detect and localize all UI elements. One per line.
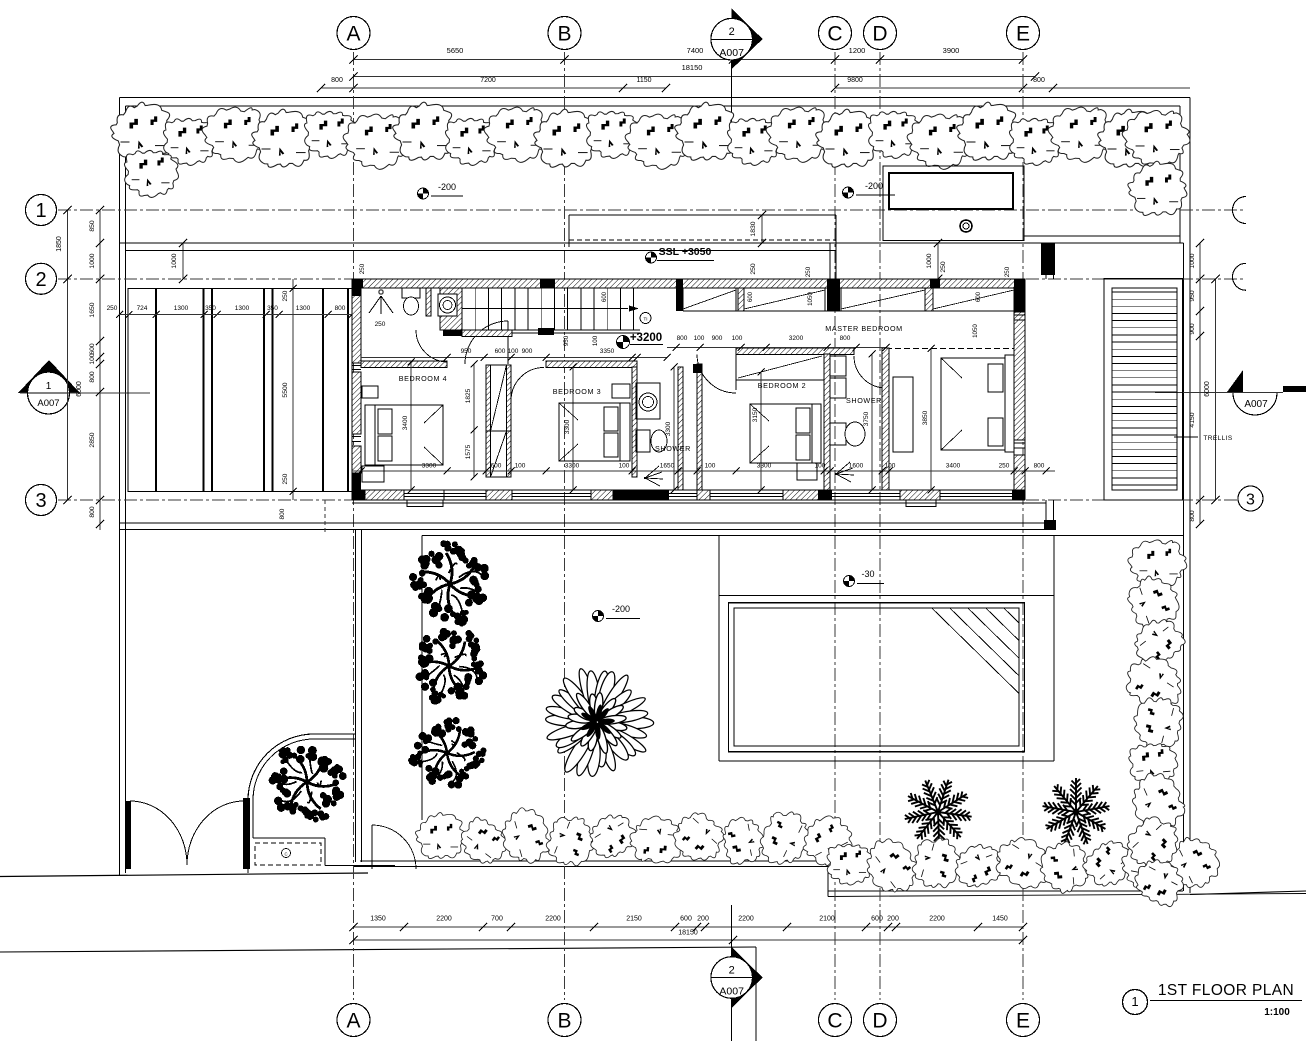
svg-text:E: E bbox=[1016, 23, 1030, 46]
svg-text:800: 800 bbox=[331, 77, 343, 84]
svg-text:E: E bbox=[1016, 1010, 1030, 1033]
svg-text:250: 250 bbox=[282, 473, 289, 484]
svg-text:3900: 3900 bbox=[943, 46, 960, 55]
svg-text:3: 3 bbox=[1246, 491, 1255, 508]
svg-text:3150: 3150 bbox=[752, 407, 759, 422]
svg-text:800: 800 bbox=[89, 506, 96, 518]
svg-text:4150: 4150 bbox=[1189, 412, 1196, 427]
svg-text:D: D bbox=[872, 23, 887, 46]
svg-text:-30: -30 bbox=[861, 569, 874, 579]
svg-text:A007: A007 bbox=[719, 47, 744, 59]
svg-text:1300: 1300 bbox=[296, 305, 311, 312]
svg-text:100: 100 bbox=[592, 335, 599, 346]
svg-text:724: 724 bbox=[137, 305, 148, 312]
svg-text:-200: -200 bbox=[438, 182, 456, 192]
svg-text:2850: 2850 bbox=[89, 432, 96, 447]
svg-text:BEDROOM 3: BEDROOM 3 bbox=[553, 387, 602, 396]
svg-text:-200: -200 bbox=[865, 181, 883, 191]
svg-text:1450: 1450 bbox=[992, 916, 1008, 923]
svg-text:SSL +3050: SSL +3050 bbox=[659, 246, 712, 258]
svg-text:1: 1 bbox=[1131, 994, 1138, 1009]
svg-text:250: 250 bbox=[107, 305, 118, 312]
svg-text:BEDROOM 2: BEDROOM 2 bbox=[758, 381, 807, 390]
svg-text:350: 350 bbox=[205, 305, 216, 312]
svg-text:2: 2 bbox=[729, 965, 735, 977]
svg-text:1000: 1000 bbox=[1189, 253, 1196, 268]
svg-text:TRELLIS: TRELLIS bbox=[1203, 435, 1232, 442]
svg-text:3: 3 bbox=[35, 490, 46, 512]
svg-text:3300: 3300 bbox=[564, 419, 571, 434]
svg-text:A: A bbox=[346, 23, 360, 46]
svg-text:1650: 1650 bbox=[660, 463, 675, 470]
svg-text:1850: 1850 bbox=[56, 236, 63, 252]
svg-text:3400: 3400 bbox=[946, 463, 961, 470]
svg-text:600: 600 bbox=[495, 348, 506, 355]
svg-text:2100: 2100 bbox=[819, 916, 835, 923]
svg-text:1:100: 1:100 bbox=[1264, 1007, 1290, 1018]
svg-text:B: B bbox=[557, 23, 571, 46]
svg-text:A: A bbox=[346, 1010, 360, 1033]
svg-text:A007: A007 bbox=[719, 986, 744, 998]
svg-text:200: 200 bbox=[697, 916, 709, 923]
svg-text:3300: 3300 bbox=[665, 421, 672, 436]
svg-text:C: C bbox=[827, 1010, 842, 1033]
svg-text:100: 100 bbox=[89, 353, 96, 365]
svg-text:3300: 3300 bbox=[565, 463, 580, 470]
svg-text:3200: 3200 bbox=[789, 335, 804, 342]
svg-text:2200: 2200 bbox=[545, 916, 561, 923]
svg-text:850: 850 bbox=[89, 220, 96, 232]
svg-text:100: 100 bbox=[732, 335, 743, 342]
svg-text:800: 800 bbox=[335, 305, 346, 312]
svg-text:800: 800 bbox=[1034, 463, 1045, 470]
svg-text:1150: 1150 bbox=[636, 77, 651, 84]
svg-text:350: 350 bbox=[267, 305, 278, 312]
svg-text:1825: 1825 bbox=[465, 388, 472, 403]
svg-text:2: 2 bbox=[729, 26, 735, 38]
svg-text:BEDROOM 4: BEDROOM 4 bbox=[399, 374, 448, 383]
svg-text:B: B bbox=[557, 1010, 571, 1033]
svg-text:700: 700 bbox=[491, 916, 503, 923]
svg-text:5650: 5650 bbox=[447, 46, 464, 55]
svg-text:+3200: +3200 bbox=[630, 332, 662, 344]
svg-text:3350: 3350 bbox=[600, 348, 615, 355]
svg-text:950: 950 bbox=[563, 335, 570, 346]
svg-text:D: D bbox=[872, 1010, 887, 1033]
svg-text:6000: 6000 bbox=[1204, 381, 1211, 397]
svg-text:900: 900 bbox=[712, 335, 723, 342]
svg-text:900: 900 bbox=[1189, 323, 1196, 335]
svg-text:1: 1 bbox=[35, 200, 46, 222]
svg-text:1300: 1300 bbox=[174, 305, 189, 312]
svg-text:800: 800 bbox=[1189, 510, 1196, 522]
svg-text:1050: 1050 bbox=[972, 324, 979, 338]
svg-text:1050: 1050 bbox=[807, 292, 814, 306]
svg-text:100: 100 bbox=[885, 463, 896, 470]
svg-text:18150: 18150 bbox=[682, 63, 703, 72]
svg-text:600: 600 bbox=[491, 463, 502, 470]
svg-text:800: 800 bbox=[1033, 77, 1045, 84]
svg-text:7200: 7200 bbox=[480, 77, 496, 84]
svg-text:100: 100 bbox=[619, 463, 630, 470]
svg-text:800: 800 bbox=[279, 508, 286, 519]
svg-text:600: 600 bbox=[976, 291, 982, 302]
svg-text:1350: 1350 bbox=[370, 916, 386, 923]
svg-text:1: 1 bbox=[46, 381, 52, 392]
svg-text:SHOWER: SHOWER bbox=[846, 396, 882, 405]
svg-text:9800: 9800 bbox=[847, 77, 863, 84]
svg-text:600: 600 bbox=[89, 343, 96, 355]
svg-text:A007: A007 bbox=[37, 398, 59, 409]
svg-text:2150: 2150 bbox=[626, 916, 642, 923]
svg-text:250: 250 bbox=[999, 463, 1010, 470]
svg-text:3750: 3750 bbox=[863, 411, 870, 426]
svg-text:1200: 1200 bbox=[849, 46, 866, 55]
svg-text:1830: 1830 bbox=[750, 221, 757, 236]
svg-text:1000: 1000 bbox=[89, 253, 96, 268]
svg-text:18150: 18150 bbox=[678, 930, 698, 937]
svg-text:250: 250 bbox=[282, 290, 289, 301]
svg-text:250: 250 bbox=[359, 263, 366, 274]
svg-text:100: 100 bbox=[705, 463, 716, 470]
svg-text:6000: 6000 bbox=[76, 381, 83, 397]
svg-text:2: 2 bbox=[35, 269, 46, 291]
svg-text:600: 600 bbox=[680, 916, 692, 923]
svg-text:950: 950 bbox=[461, 348, 472, 355]
svg-text:800: 800 bbox=[840, 335, 851, 342]
svg-text:3400: 3400 bbox=[402, 415, 409, 430]
svg-text:5500: 5500 bbox=[282, 382, 289, 397]
svg-text:250: 250 bbox=[1004, 266, 1011, 277]
svg-text:SHOWER: SHOWER bbox=[655, 444, 691, 453]
svg-text:3850: 3850 bbox=[922, 410, 929, 425]
svg-text:2200: 2200 bbox=[738, 916, 754, 923]
svg-text:3300: 3300 bbox=[422, 463, 437, 470]
svg-text:600: 600 bbox=[748, 291, 754, 302]
svg-text:250: 250 bbox=[375, 321, 386, 328]
svg-text:1ST FLOOR PLAN: 1ST FLOOR PLAN bbox=[1158, 982, 1294, 999]
svg-text:900: 900 bbox=[522, 348, 533, 355]
svg-text:100: 100 bbox=[515, 463, 526, 470]
svg-text:250: 250 bbox=[805, 266, 812, 277]
svg-text:250: 250 bbox=[940, 261, 947, 273]
svg-text:C: C bbox=[284, 852, 287, 857]
svg-text:MASTER BEDROOM: MASTER BEDROOM bbox=[825, 324, 903, 333]
svg-text:1650: 1650 bbox=[89, 302, 96, 317]
svg-text:100: 100 bbox=[694, 335, 705, 342]
svg-text:7400: 7400 bbox=[687, 46, 704, 55]
svg-text:800: 800 bbox=[677, 335, 688, 342]
svg-text:1000: 1000 bbox=[926, 253, 933, 268]
svg-text:100: 100 bbox=[815, 463, 826, 470]
svg-text:600: 600 bbox=[871, 916, 883, 923]
svg-text:1575: 1575 bbox=[465, 444, 472, 459]
svg-text:TI: TI bbox=[644, 317, 648, 322]
svg-text:800: 800 bbox=[89, 371, 96, 383]
svg-text:2200: 2200 bbox=[436, 916, 452, 923]
svg-text:1000: 1000 bbox=[171, 253, 178, 268]
svg-text:200: 200 bbox=[887, 916, 899, 923]
svg-text:950: 950 bbox=[1189, 290, 1196, 302]
svg-text:100: 100 bbox=[508, 348, 519, 355]
svg-text:1300: 1300 bbox=[235, 305, 250, 312]
svg-text:3300: 3300 bbox=[757, 463, 772, 470]
svg-text:C: C bbox=[827, 23, 842, 46]
svg-text:A007: A007 bbox=[1244, 399, 1268, 410]
svg-text:-200: -200 bbox=[612, 604, 630, 614]
svg-text:250: 250 bbox=[750, 263, 757, 275]
svg-text:2200: 2200 bbox=[929, 916, 945, 923]
